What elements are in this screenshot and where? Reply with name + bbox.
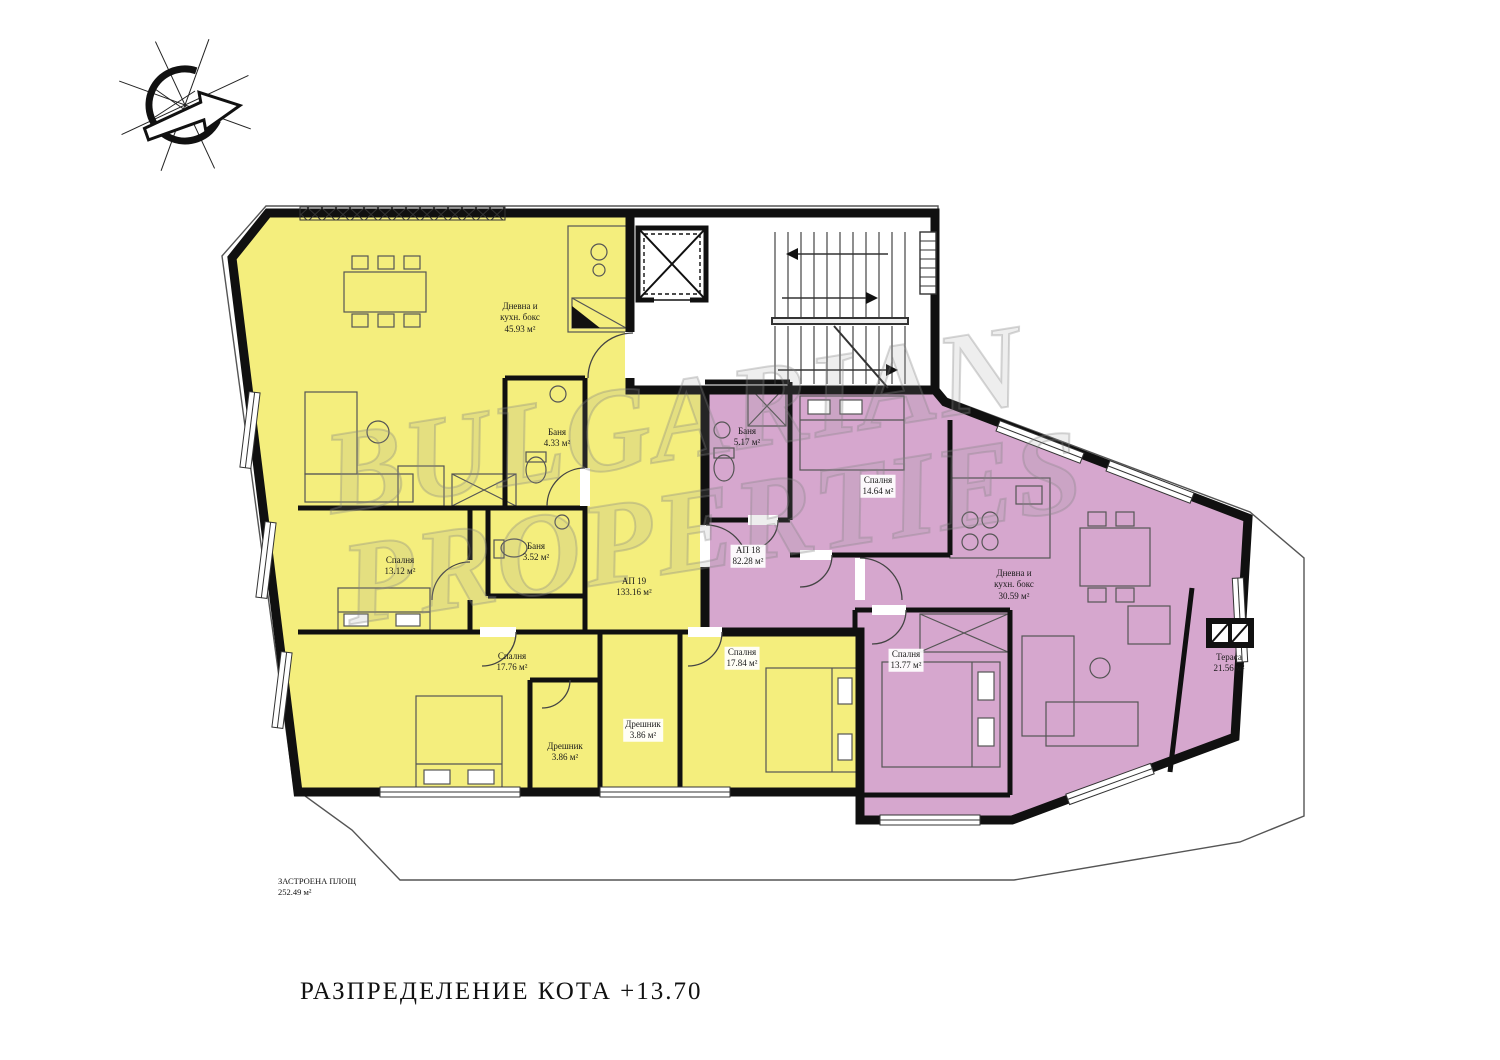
footprint-area: 252.49 м²: [278, 887, 356, 898]
room-label: Спалня17.84 м²: [725, 647, 760, 670]
plan-title: РАЗПРЕДЕЛЕНИЕ КОТА +13.70: [300, 978, 703, 1006]
room-label: Тераса21.56 м²: [1214, 652, 1245, 675]
room-label: Дрешник3.86 м²: [547, 741, 583, 764]
room-label: Спалня17.76 м²: [497, 651, 528, 674]
footprint-label: ЗАСТРОЕНА ПЛОЩ 252.49 м²: [278, 876, 356, 899]
compass-icon: [119, 39, 251, 171]
floor-plan: BULGARIAN PROPERTIES Дневна икухн. бокс4…: [0, 0, 1500, 1060]
room-label: Баня4.33 м²: [544, 427, 570, 450]
room-label: Дрешник3.86 м²: [623, 719, 663, 742]
footprint-title: ЗАСТРОЕНА ПЛОЩ: [278, 876, 356, 887]
room-label: Баня5.17 м²: [734, 426, 760, 449]
room-label: Дневна икухн. бокс30.59 м²: [994, 568, 1034, 602]
room-label: Спалня14.64 м²: [861, 475, 896, 498]
terrace-vent-icon: [1206, 618, 1254, 648]
elevator-shaft: [638, 228, 706, 304]
room-label: Дневна икухн. бокс45.93 м²: [500, 301, 540, 335]
room-label: АП 19133.16 м²: [616, 576, 651, 599]
floor-plan-drawing: [0, 0, 1500, 1060]
room-label: Спалня13.12 м²: [385, 555, 416, 578]
room-label: АП 1882.28 м²: [731, 545, 766, 568]
facade-ladder-strip: [920, 232, 936, 294]
room-label: Спалня13.77 м²: [889, 649, 924, 672]
room-label: Баня3.52 м²: [523, 541, 549, 564]
